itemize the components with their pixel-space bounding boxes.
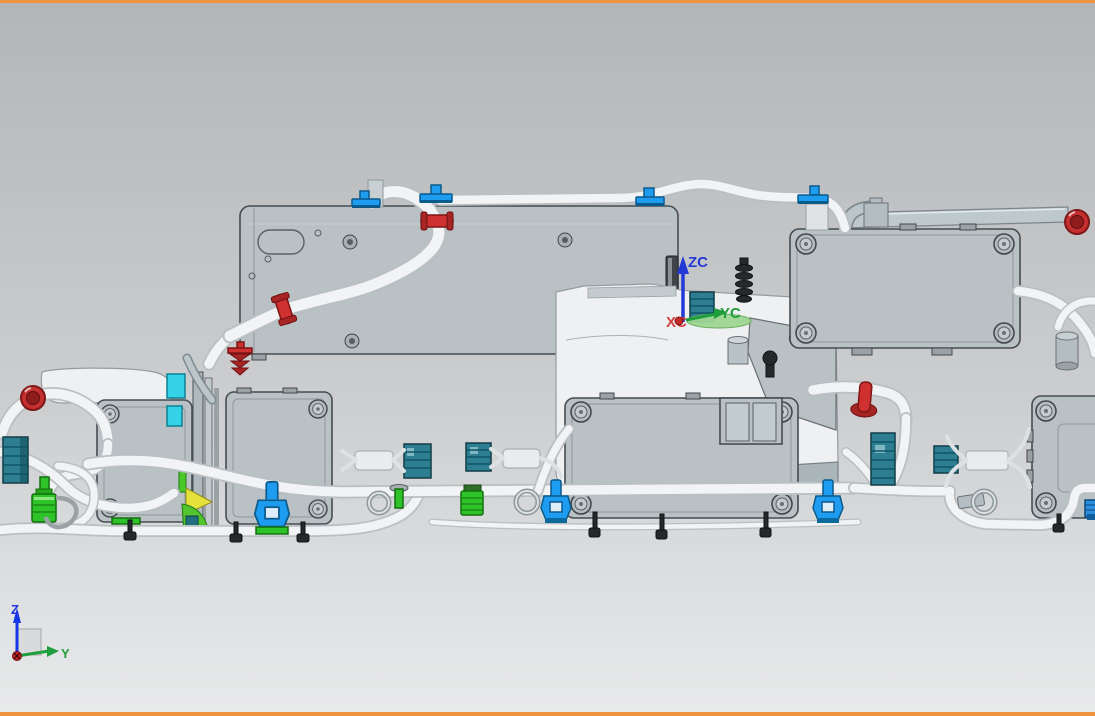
unit-foot bbox=[932, 348, 952, 355]
green-connector[interactable] bbox=[461, 485, 483, 515]
mount-tab bbox=[600, 393, 614, 399]
wcs-y-label: YC bbox=[720, 305, 741, 322]
panel-foot bbox=[252, 354, 266, 360]
unit-foot bbox=[852, 348, 872, 355]
grommet-red[interactable] bbox=[21, 386, 45, 410]
harness-connector-teal[interactable] bbox=[871, 433, 895, 485]
cylinder-stub bbox=[728, 337, 748, 365]
screw-boss bbox=[994, 234, 1014, 254]
triad-y-label: Y bbox=[61, 646, 70, 661]
edge-tab bbox=[1027, 450, 1033, 462]
wcs-z-label: ZC bbox=[688, 254, 708, 271]
screw-boss bbox=[772, 494, 792, 514]
screw-boss bbox=[309, 500, 327, 518]
green-base bbox=[256, 527, 288, 534]
connector-compartment bbox=[720, 398, 782, 444]
screw-boss bbox=[1036, 493, 1056, 513]
window-bottom-border bbox=[0, 712, 1095, 716]
green-rail bbox=[112, 518, 140, 524]
screw-hole bbox=[345, 334, 359, 348]
tube-sleeve[interactable] bbox=[966, 451, 1008, 470]
mount-tab bbox=[960, 224, 976, 230]
cad-viewport[interactable]: XC ZC YC Z Y bbox=[0, 0, 1095, 716]
harness-connector-teal[interactable] bbox=[466, 443, 491, 471]
mount-tab bbox=[900, 224, 916, 230]
harness-connector-teal[interactable] bbox=[404, 444, 431, 478]
screw-hole bbox=[343, 235, 357, 249]
tube-sleeve[interactable] bbox=[355, 451, 393, 470]
red-clamp-ring[interactable] bbox=[421, 212, 453, 230]
mount-tab bbox=[237, 388, 251, 393]
mount-tab bbox=[283, 388, 297, 393]
mount-tab bbox=[686, 393, 700, 399]
screw-boss bbox=[571, 402, 591, 422]
wcs-origin[interactable] bbox=[675, 317, 683, 325]
tube-sleeve[interactable] bbox=[503, 449, 540, 468]
blue-edge-connector[interactable] bbox=[1085, 500, 1095, 520]
cyan-clip[interactable] bbox=[167, 374, 185, 398]
window-top-border bbox=[0, 0, 1095, 3]
screw-boss bbox=[796, 323, 816, 343]
triad-plane-square bbox=[17, 629, 41, 655]
triad-z-label: Z bbox=[11, 602, 19, 617]
triad-x-origin[interactable] bbox=[13, 652, 22, 661]
screw-boss bbox=[994, 323, 1014, 343]
screw-boss bbox=[1036, 401, 1056, 421]
screw-hole bbox=[558, 233, 572, 247]
grommet-red[interactable] bbox=[1065, 210, 1089, 234]
cyan-clip[interactable] bbox=[167, 406, 182, 426]
cylinder-stub bbox=[1056, 332, 1078, 370]
harness-connector-teal[interactable] bbox=[3, 437, 28, 483]
viewport-canvas[interactable] bbox=[0, 0, 1095, 716]
center-control-unit[interactable] bbox=[565, 393, 798, 518]
screw-boss bbox=[796, 234, 816, 254]
screw-boss bbox=[571, 494, 591, 514]
screw-boss bbox=[309, 400, 327, 418]
